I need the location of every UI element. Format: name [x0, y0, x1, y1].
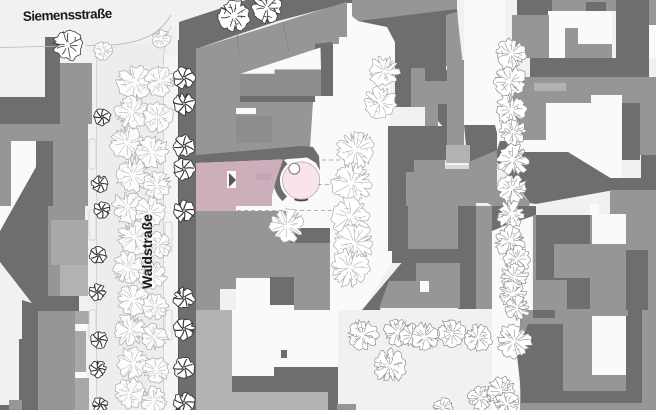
svg-text:Waldstraße: Waldstraße: [139, 214, 155, 289]
svg-text:Siemensstraße: Siemensstraße: [23, 6, 113, 24]
